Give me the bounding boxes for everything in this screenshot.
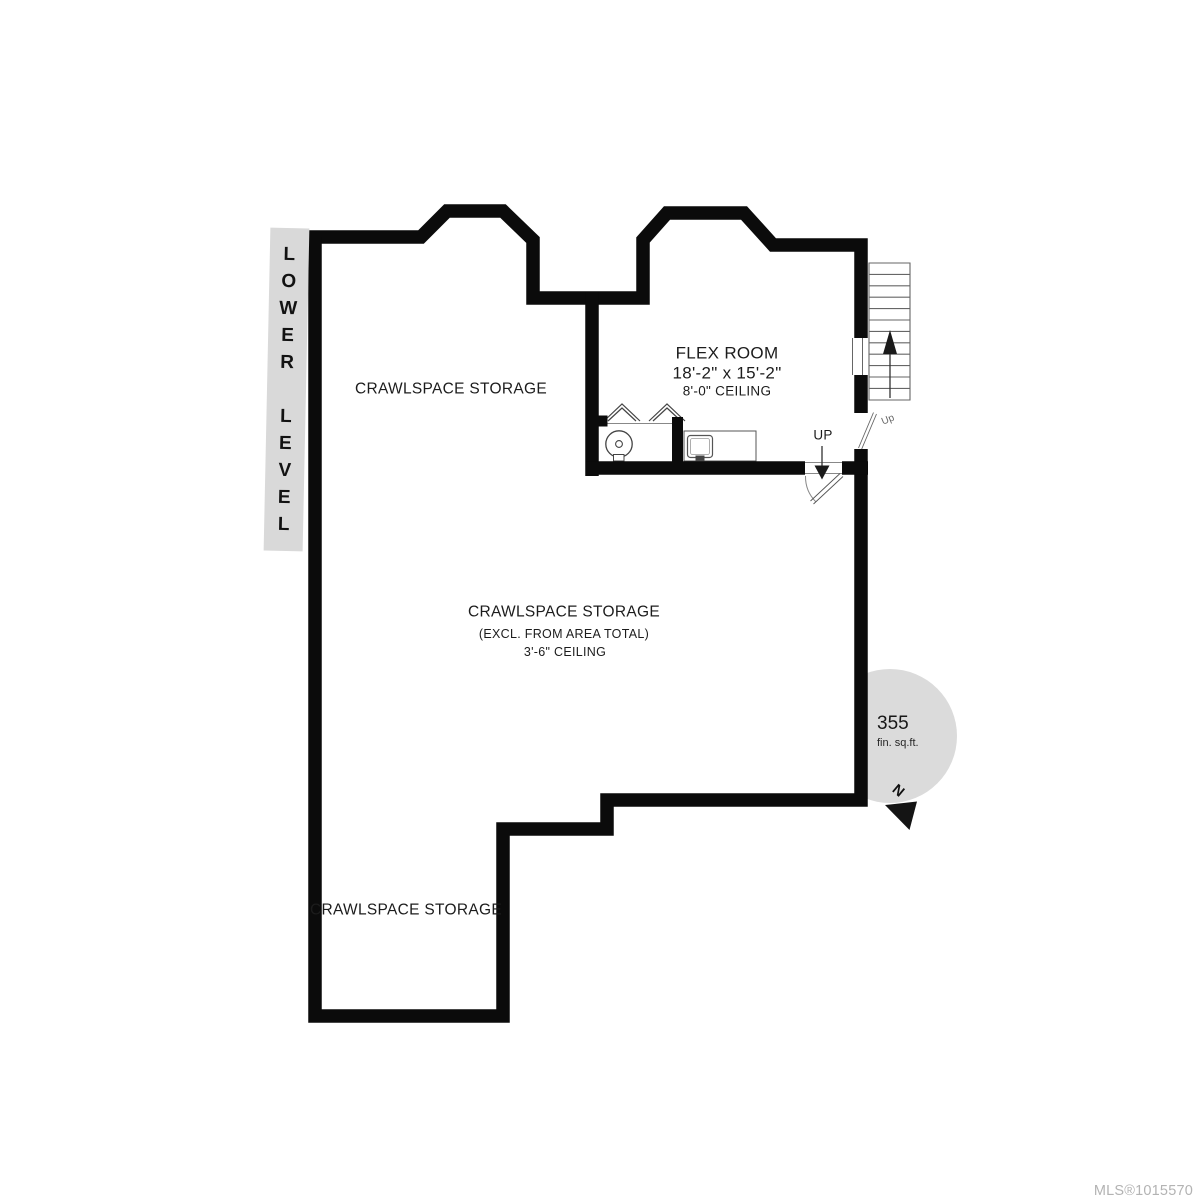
crawlspace-main-label: CRAWLSPACE STORAGE (468, 603, 660, 620)
water-heater-valve (616, 441, 623, 448)
stair-up-arrowhead (883, 330, 897, 354)
up-stairs-label: UP (813, 429, 832, 444)
crawlspace-bottom-label: CRAWLSPACE STORAGE (310, 901, 502, 918)
floor-plan-page: { "title_band": { "text": "L\nO\nW\nE\nR… (0, 0, 1200, 1200)
crawlspace-main-ceiling: 3'-6" CEILING (524, 646, 606, 660)
level-title-text: L O W E R L E V E L (274, 241, 298, 538)
floor-plan-canvas (0, 0, 1200, 1200)
flex-room-name: FLEX ROOM (676, 345, 779, 364)
staircase (869, 263, 910, 400)
area-badge-unit: fin. sq.ft. (877, 737, 919, 749)
stair-door-leaf (859, 413, 877, 450)
flex-room-ceiling: 8'-0" CEILING (683, 385, 772, 400)
flex-room-dimensions: 18'-2" x 15'-2" (672, 365, 781, 384)
mls-number: MLS®1015570 (1094, 1183, 1193, 1199)
crawlspace-main-note: (EXCL. FROM AREA TOTAL) (479, 628, 649, 642)
closet-wall-return (597, 416, 608, 427)
sink-faucet (696, 456, 705, 461)
area-badge-value: 355 (877, 713, 909, 735)
level-title-band: L O W E R L E V E L (264, 228, 310, 552)
closet-divider-stub (672, 417, 683, 462)
crawlspace-top-label: CRAWLSPACE STORAGE (355, 380, 547, 397)
north-arrow-icon (885, 802, 917, 831)
